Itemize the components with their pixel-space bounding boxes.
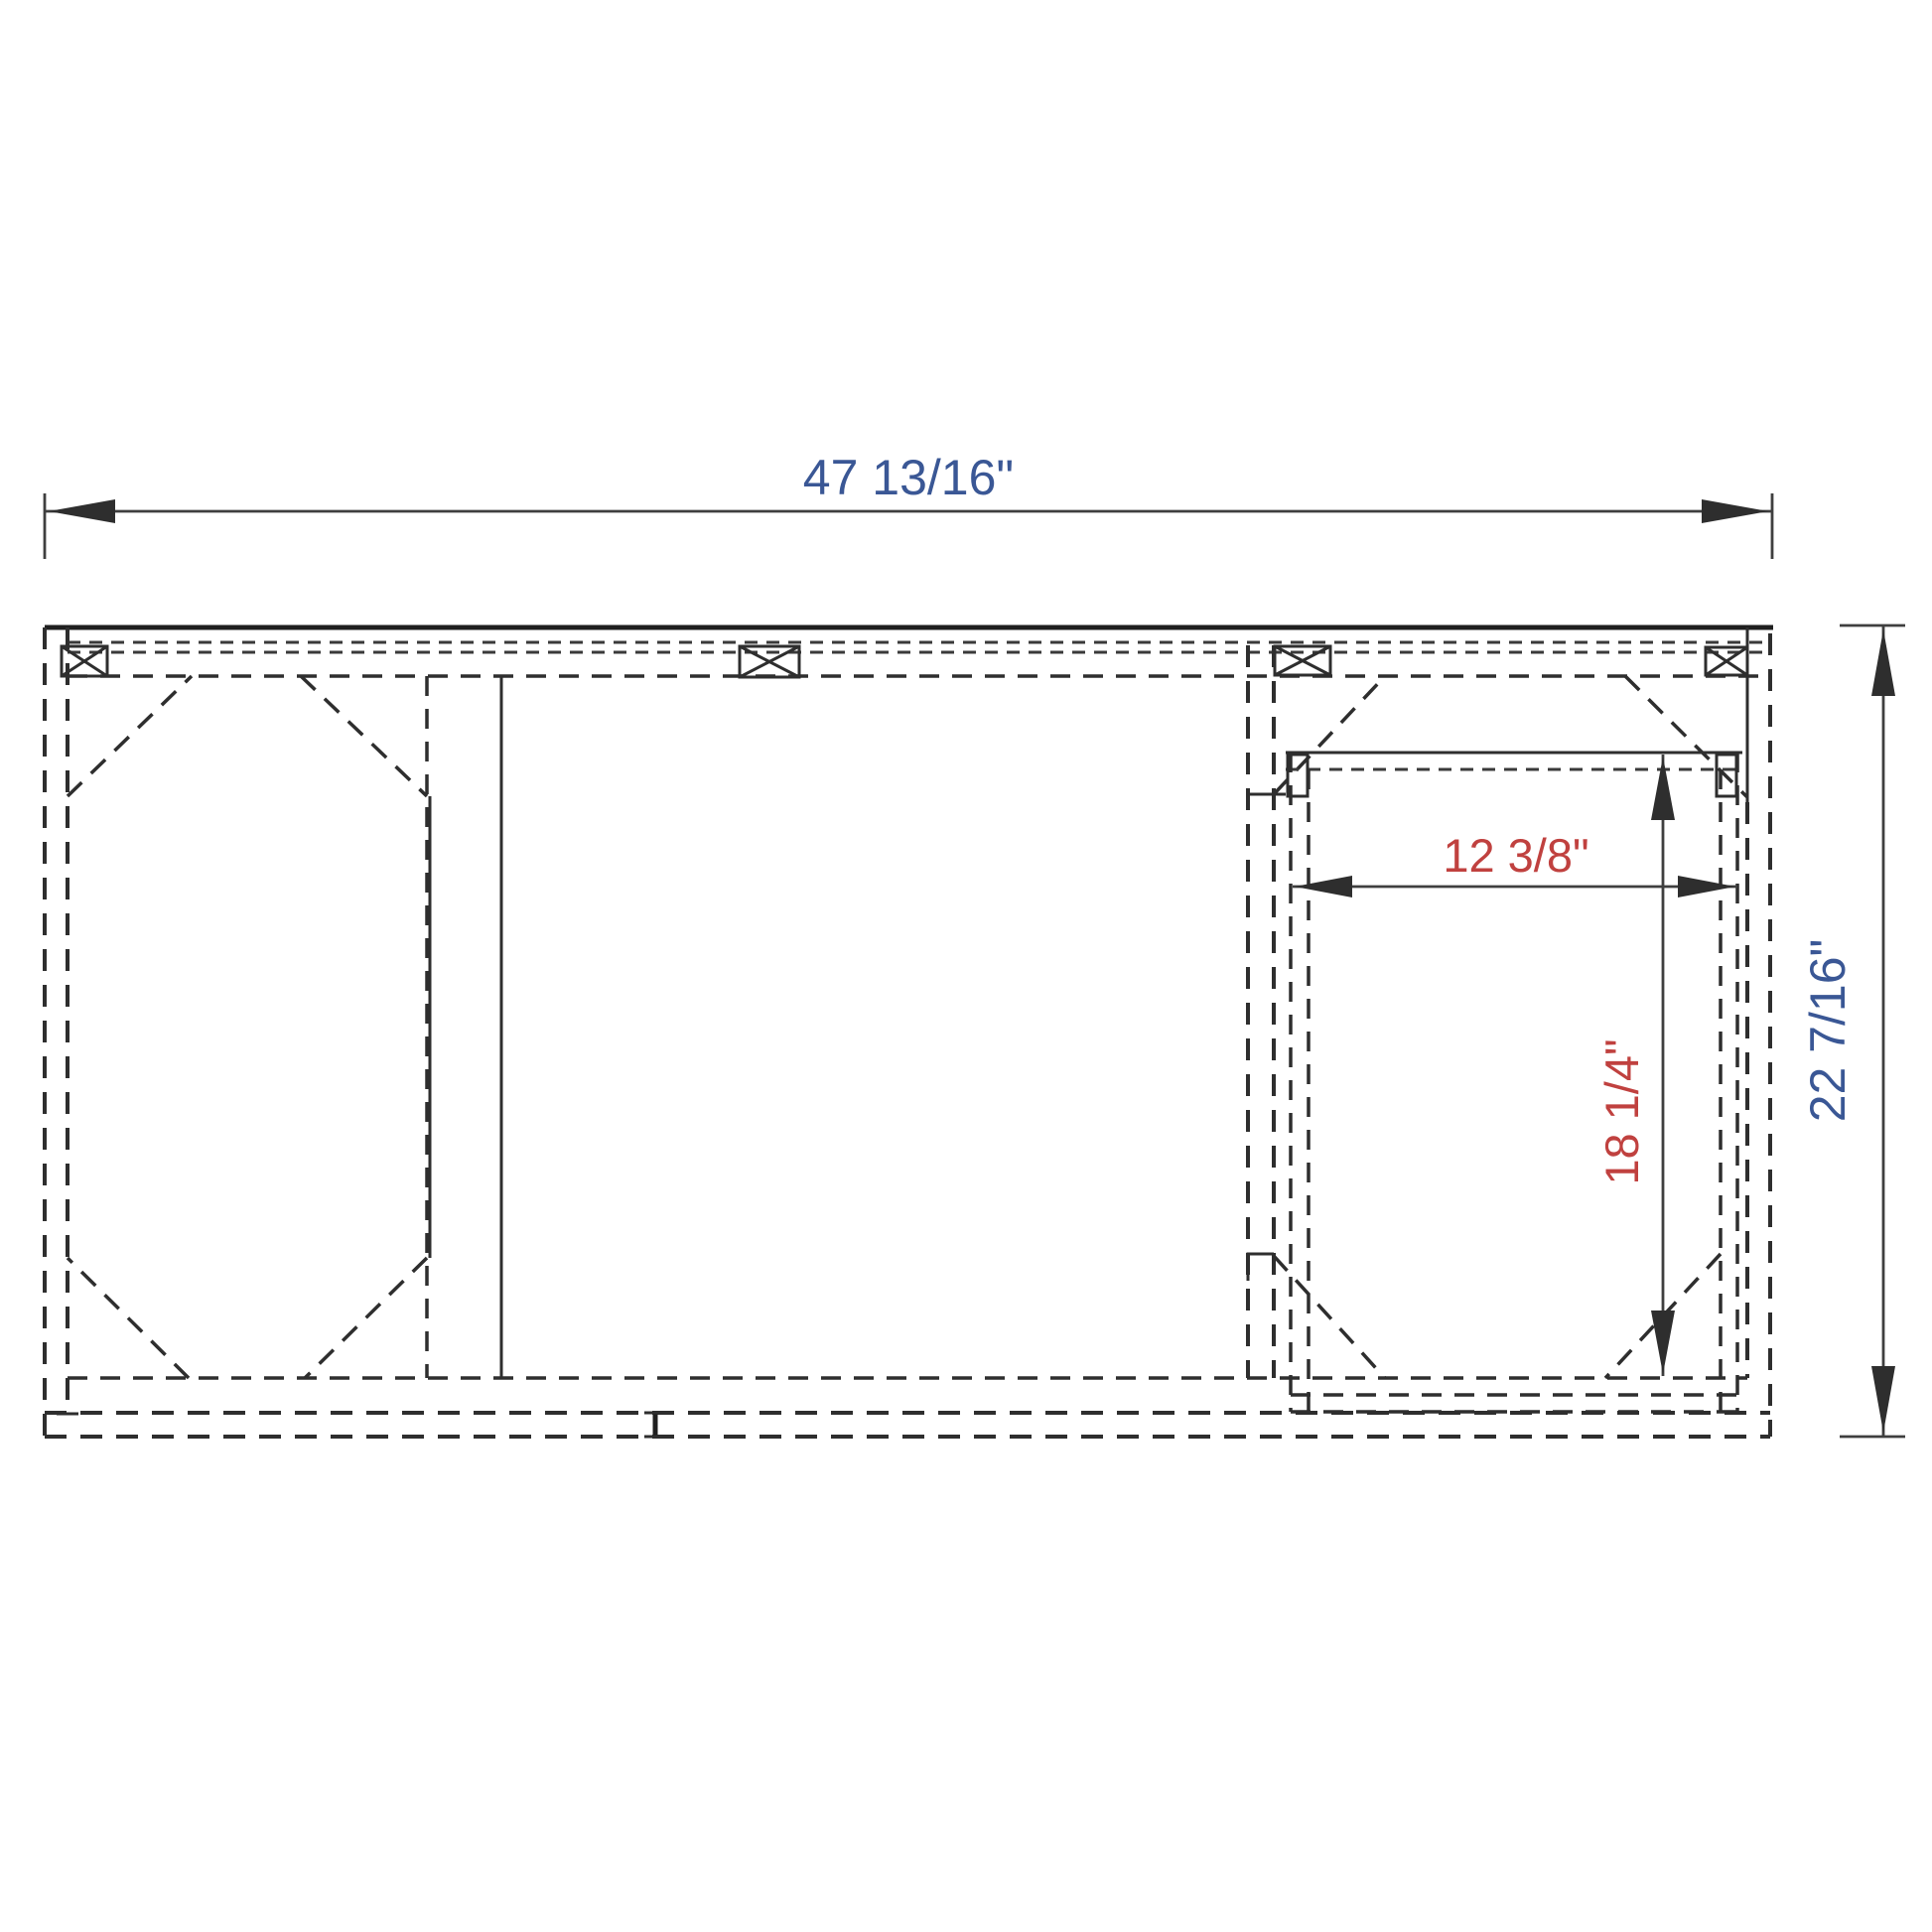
overall-height-dimension-label: 22 7/16" <box>1800 939 1856 1123</box>
nailer-top-right <box>1706 647 1747 675</box>
arrow-right-icon <box>1678 876 1735 897</box>
right-partition <box>1248 645 1286 1378</box>
nailer-at-partition <box>1275 646 1330 675</box>
opening-width-dimension-label: 12 3/8" <box>1443 829 1588 882</box>
overall-width-dimension-label: 47 13/16" <box>803 450 1014 505</box>
arrow-up-icon <box>1871 629 1895 696</box>
opening-height-dimension-label: 18 1/4" <box>1595 1038 1648 1184</box>
opening-height-dimension: 18 1/4" <box>1595 755 1675 1376</box>
right-compartment-braces <box>1274 676 1747 1378</box>
overall-width-dimension: 47 13/16" <box>45 450 1772 559</box>
cabinet-technical-drawing: 47 13/16" 22 7/16" 12 3/8" 18 1/4" <box>0 0 1932 1932</box>
arrow-left-icon <box>49 499 115 523</box>
center-partitions <box>430 676 501 1378</box>
arrow-right-icon <box>1702 499 1768 523</box>
cabinet-outline <box>45 627 1773 1437</box>
bottom-panels <box>45 1378 1770 1437</box>
nailer-top-left <box>62 646 107 676</box>
left-side-wall <box>45 627 78 1437</box>
arrow-down-icon <box>1651 1311 1675 1374</box>
opening-width-dimension: 12 3/8" <box>1293 829 1737 897</box>
drawing-canvas: 47 13/16" 22 7/16" 12 3/8" 18 1/4" <box>0 0 1932 1932</box>
overall-height-dimension: 22 7/16" <box>1800 625 1905 1437</box>
arrow-left-icon <box>1295 876 1352 897</box>
bottom-panel-joint <box>644 1413 666 1437</box>
top-panel-rails <box>68 642 1770 676</box>
left-door-panel <box>68 676 427 1378</box>
right-side-wall <box>1747 627 1770 1437</box>
arrow-down-icon <box>1871 1366 1895 1433</box>
arrow-up-icon <box>1651 757 1675 820</box>
